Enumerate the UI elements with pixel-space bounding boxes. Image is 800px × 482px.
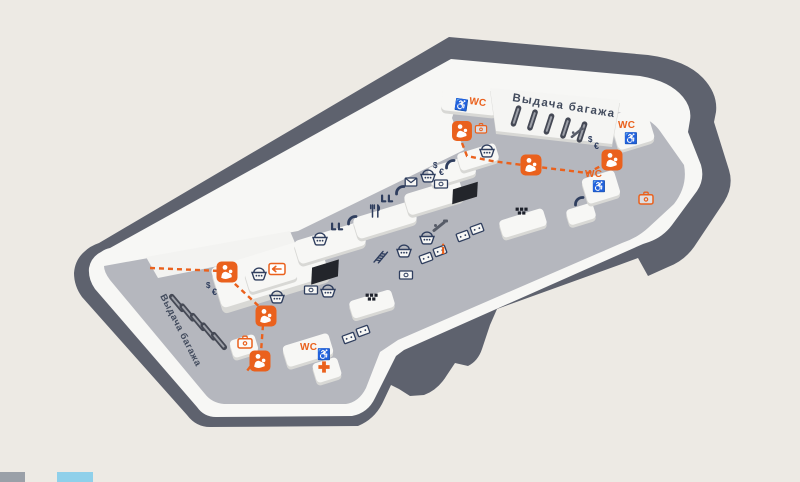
dollar-glyph: $: [433, 161, 438, 170]
atm-icon: [400, 271, 413, 279]
wc-label: WC: [618, 120, 635, 131]
floor-button-2[interactable]: [57, 472, 93, 482]
terminal-map[interactable]: $ € $ € $ € i ♿ WC WC ♿ WC ♿ WC ♿ Выдача…: [0, 0, 800, 482]
wheelchair-icon: ♿: [592, 180, 606, 193]
exit-icon: [269, 264, 285, 275]
information-icon: i: [441, 242, 445, 258]
mother-and-child-icon: [602, 150, 623, 171]
dollar-glyph: $: [588, 135, 593, 144]
mother-and-child-icon: [452, 121, 472, 141]
euro-glyph: €: [212, 287, 217, 297]
terminal-map-canvas: $ € $ € $ € i ♿ WC WC ♿ WC ♿ WC ♿ Выдача…: [0, 0, 800, 482]
floor-button-1[interactable]: [0, 472, 25, 482]
mother-and-child-icon: [521, 155, 542, 176]
wc-label: WC: [300, 342, 317, 353]
post-icon: [405, 178, 417, 186]
euro-glyph: €: [439, 167, 444, 177]
atm-icon: [305, 286, 318, 294]
mother-and-child-icon: [256, 306, 277, 327]
atm-icon: [435, 180, 448, 188]
wc-label: WC: [585, 169, 602, 180]
wheelchair-icon: ♿: [624, 132, 638, 145]
mother-and-child-icon: [250, 351, 271, 372]
euro-glyph: €: [594, 141, 599, 151]
dollar-glyph: $: [206, 281, 211, 290]
wheelchair-icon: ♿: [317, 348, 331, 361]
mother-and-child-icon: [217, 262, 238, 283]
wheelchair-icon: ♿: [454, 98, 470, 113]
